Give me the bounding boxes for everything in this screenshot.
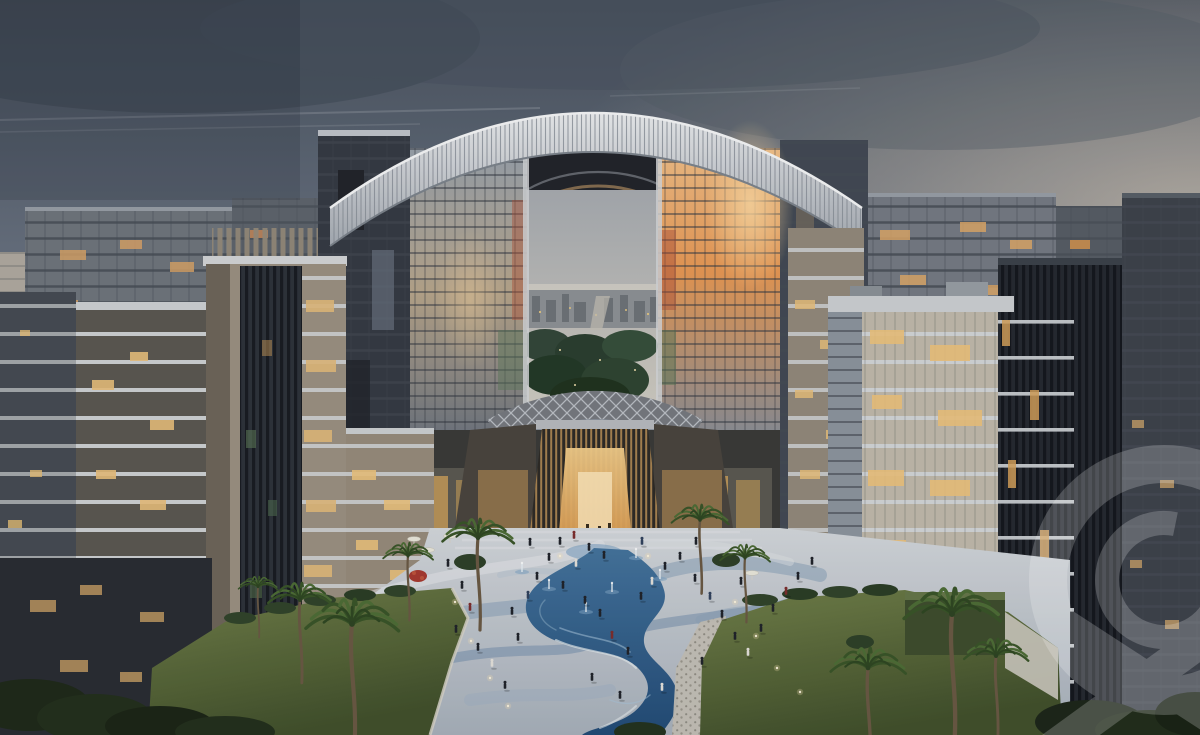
vignette: [0, 0, 1200, 735]
render-scene: [0, 0, 1200, 735]
architectural-render-image: [0, 0, 1200, 735]
